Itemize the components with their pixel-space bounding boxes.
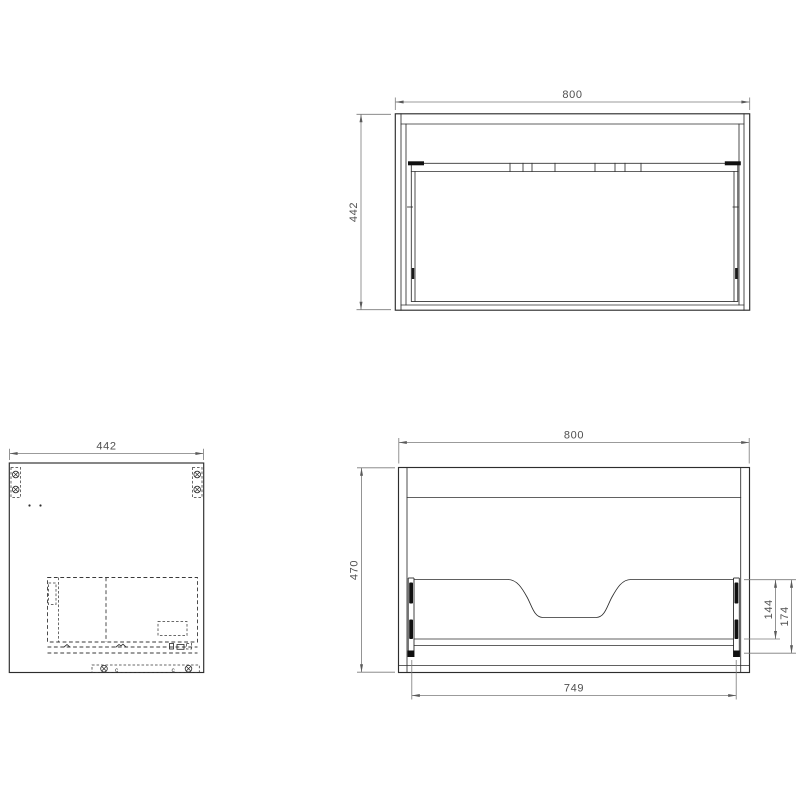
top-view-left-slide-cap <box>408 161 424 165</box>
top-view-carcass-outline <box>395 114 749 310</box>
drawing-canvas: 800 442 <box>0 0 800 800</box>
top-view: 800 442 <box>348 89 750 310</box>
technical-drawing-svg: 800 442 <box>0 0 800 800</box>
side-view-panel-outline <box>9 463 203 673</box>
side-view-rail-clip-detail <box>187 644 192 650</box>
front-view-dim-width: 800 <box>399 430 749 464</box>
side-view-drawer-hidden-outline <box>48 578 198 643</box>
top-view-drawer-box <box>411 163 738 301</box>
drawer-slide-left <box>408 578 415 657</box>
front-view: 800 470 749 144 <box>348 430 796 700</box>
top-view-dim-depth: 442 <box>348 114 391 309</box>
front-view-back-panel-cutout <box>414 580 734 618</box>
side-view-rail-clip-detail <box>170 644 174 650</box>
screw-icon <box>185 665 192 672</box>
side-view-slide-block-hidden <box>158 622 187 636</box>
front-view-dim-height: 470 <box>348 468 395 672</box>
screw-icon <box>12 486 19 493</box>
side-view-pilot-hole-dot <box>28 504 30 506</box>
dim-label-top-depth: 442 <box>348 202 360 222</box>
side-view-bottom-strip-hidden <box>92 665 199 673</box>
top-view-dim-width: 800 <box>395 89 749 110</box>
drawer-slide-right <box>733 578 740 657</box>
top-view-back-rail-fittings <box>510 163 641 171</box>
front-view-dim-back-panel: 144 174 <box>744 580 796 654</box>
side-view-pilot-hole-dot <box>39 504 41 506</box>
dim-label-top-width: 800 <box>562 89 582 101</box>
dim-label-side-depth: 442 <box>96 441 116 453</box>
side-view-front-bracket-hidden <box>49 583 57 605</box>
top-view-right-slide-cap <box>725 161 741 165</box>
dim-label-back-assembly: 174 <box>779 606 791 626</box>
screw-icon <box>194 486 201 493</box>
side-view: c c 442 <box>9 441 203 674</box>
screw-icon <box>12 471 19 478</box>
screw-icon <box>101 665 108 672</box>
dim-label-front-opening: 749 <box>564 683 584 695</box>
front-view-carcass-outline <box>399 468 750 673</box>
dim-label-back-panel: 144 <box>763 599 775 619</box>
dim-label-front-height: 470 <box>348 560 360 580</box>
screw-icon <box>194 471 201 478</box>
dim-label-front-width: 800 <box>564 430 584 442</box>
side-view-dim-depth: 442 <box>10 441 204 461</box>
